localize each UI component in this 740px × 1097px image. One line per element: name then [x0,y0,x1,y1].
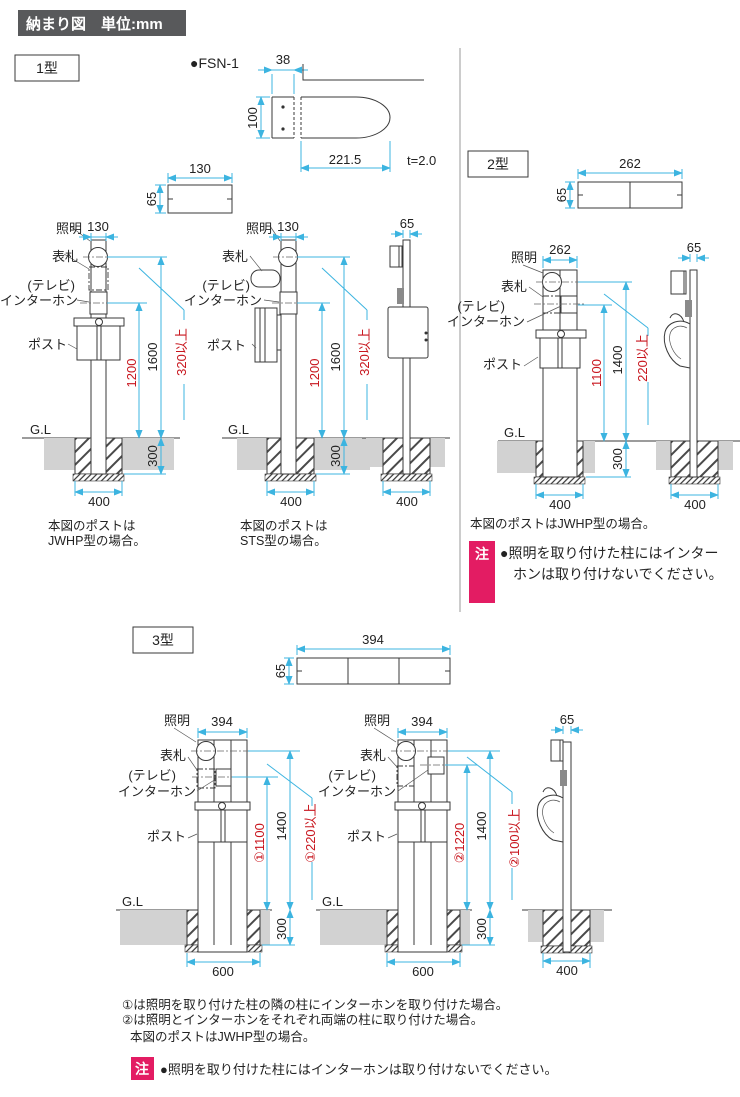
type3-side-view: 65 400 [522,712,612,978]
dim-bracket-width: 38 [276,52,290,67]
dim-footing-600: 600 [412,964,434,979]
dim-1400: 1400 [474,812,489,841]
dim-min-320: 320以上 [174,328,189,376]
dim-1600: 1600 [328,343,343,372]
pole [281,240,296,474]
post-side [388,307,428,358]
label-tv: (テレビ) [328,768,376,783]
dim-footing-400: 400 [88,494,110,509]
note-line2: JWHP型の場合。 [48,533,146,548]
type3-note-1: ①は照明を取り付けた柱の隣の柱にインターホンを取り付けた場合。 [122,997,508,1012]
label-nameplate: 表札 [52,249,78,264]
dim-width: 394 [411,714,433,729]
topview-width: 394 [362,632,384,647]
dim-1400: 1400 [610,346,625,375]
note-line1: 本図のポストは [48,519,136,533]
type1-detail-drawing: 38 100 221.5 t=2.0 [245,52,436,172]
type2-topview: 262 65 [554,156,682,208]
label-nameplate: 表札 [501,279,527,294]
label-nameplate: 表札 [360,748,386,763]
dim-min-320: 320以上 [357,328,372,376]
post-box [198,810,247,842]
type1-label: 1型 [36,60,58,76]
label-light: 照明 [56,221,82,236]
dim-1400: 1400 [274,812,289,841]
type3-note-2: ②は照明とインターホンをそれぞれ両端の柱に取り付けた場合。 [122,1012,483,1027]
label-light: 照明 [511,250,537,265]
label-interphone: インターホン [118,784,196,799]
page-header: 納まり図 単位:mm [18,10,186,36]
topview-depth: 65 [144,192,159,206]
type3-label: 3型 [152,632,174,648]
label-interphone: インターホン [318,784,396,799]
label-gl: G.L [228,422,249,437]
label-nameplate: 表札 [222,249,248,264]
topview-width: 262 [619,156,641,171]
type2-side-view: 65 400 [652,240,740,512]
dim-side-65: 65 [687,240,701,255]
label-gl: G.L [322,894,343,909]
post-box [77,326,120,360]
type2-section: 2型 262 65 照明 表札 (テレビ) インターホン ポスト [447,151,740,603]
label-gl: G.L [30,422,51,437]
dim-footing-600: 600 [212,964,234,979]
dim-plate-length: 221.5 [329,152,362,167]
topview-depth: 65 [554,188,569,202]
label-light: 照明 [364,713,390,728]
dim-depth-300: 300 [328,445,343,467]
type3-front1: 照明 表札 (テレビ) インターホン ポスト 394 ①1100 1400 ①2… [116,713,318,979]
type1-topview: 130 65 [144,161,232,213]
type1-section: 1型 ●FSN-1 38 100 221.5 t=2.0 130 65 [0,52,450,548]
type3-caution: 注 ●照明を取り付けた柱にはインターホンは取り付けないでください。 [131,1057,557,1080]
label-tv: (テレビ) [457,299,505,314]
installation-diagram-page: 納まり図 単位:mm 1型 ●FSN-1 38 100 221.5 t=2.0 … [0,0,740,1097]
type2-post-note: 本図のポストはJWHP型の場合。 [470,516,655,531]
label-post: ポスト [483,357,522,372]
caution-tag: 注 [475,546,489,562]
dim-1100: 1100 [589,359,604,387]
caution-text: ●照明を取り付けた柱にはインターホンは取り付けないでください。 [160,1062,557,1077]
dim-footing-400: 400 [280,494,302,509]
label-light: 照明 [164,713,190,728]
dim-bracket-height: 100 [245,107,260,129]
post-box [540,338,580,368]
caution-line1: ●照明を取り付けた柱にはインター [500,545,718,561]
caution-tag: 注 [135,1061,149,1077]
post-box [398,810,447,842]
dim-side-65: 65 [400,216,414,231]
dim-width: 262 [549,242,571,257]
post-box-sts [255,308,277,362]
label-interphone: インターホン [184,293,262,308]
note-line1: 本図のポストは [240,519,328,533]
type2-label: 2型 [487,156,509,172]
type3-section: 3型 394 65 照明 表札 (テレビ) インターホン ポスト [116,627,612,1080]
caution-line2: ホンは取り付けないでください。 [513,566,723,582]
nameplate-pill [251,270,280,287]
dim-depth-300: 300 [610,448,625,470]
label-tv: (テレビ) [202,278,250,293]
label-post: ポスト [28,337,67,352]
type1-front-sts: 照明 表札 (テレビ) インターホン ポスト 130 1200 1600 320… [184,219,372,548]
type3-post-note: 本図のポストはJWHP型の場合。 [130,1029,315,1044]
dim-depth-300: 300 [274,918,289,940]
type3-front2: 照明 表札 (テレビ) インターホン ポスト 394 ②1220 1400 ②1… [316,713,522,979]
type1-front-jwhp: 照明 表札 (テレビ) インターホン ポスト 130 1200 1600 320… [0,219,189,548]
post-side-curved [664,314,690,368]
interphone-side [560,770,567,786]
dim-1200: 1200 [307,359,322,388]
dim-1200: 1200 [124,359,139,388]
note-line2: STS型の場合。 [240,533,327,548]
plate-thickness: t=2.0 [407,153,436,168]
dim-min-220: ①220以上 [303,803,318,862]
interphone-box [561,296,577,313]
topview-depth: 65 [273,664,288,678]
label-gl: G.L [122,894,143,909]
interphone-box [216,769,231,786]
interphone-side [685,300,692,317]
wall-line [303,64,424,80]
dim-min-220: 220以上 [635,334,650,382]
product-code: ●FSN-1 [190,55,239,71]
label-light: 照明 [246,221,272,236]
dim-1600: 1600 [145,343,160,372]
type1-side-view: 65 400 [362,216,450,509]
dim-1100: ①1100 [252,823,267,863]
dim-depth-300: 300 [474,918,489,940]
label-gl: G.L [504,425,525,440]
type2-caution: 注 ●照明を取り付けた柱にはインター ホンは取り付けないでください。 [469,541,723,603]
dim-footing-400: 400 [556,963,578,978]
topview-width: 130 [189,161,211,176]
dim-width: 130 [277,219,299,234]
type3-topview: 394 65 [273,632,450,684]
label-interphone: インターホン [0,293,78,308]
label-tv: (テレビ) [27,278,75,293]
dim-footing-400: 400 [549,497,571,512]
dim-width: 130 [87,219,109,234]
dim-width: 394 [211,714,233,729]
dim-footing-400: 400 [396,494,418,509]
interphone-side [397,288,404,304]
label-tv: (テレビ) [128,768,176,783]
interphone-box [428,757,444,774]
lamp-side [551,740,563,761]
diagram-canvas: 納まり図 単位:mm 1型 ●FSN-1 38 100 221.5 t=2.0 … [0,0,740,1097]
dim-1220: ②1220 [452,823,467,864]
dim-depth-300: 300 [145,445,160,467]
label-post: ポスト [147,829,186,844]
dim-footing-400: 400 [684,497,706,512]
type2-front: 照明 表札 (テレビ) インターホン ポスト 262 1100 1400 220… [447,242,660,512]
label-post: ポスト [207,338,246,353]
label-interphone: インターホン [447,314,525,329]
dim-min-100: ②100以上 [507,808,522,867]
label-post: ポスト [347,829,386,844]
dim-side-65: 65 [560,712,574,727]
label-nameplate: 表札 [160,748,186,763]
lamp-side [390,246,402,267]
post-side-curved [537,788,563,842]
page-title: 納まり図 単位:mm [26,15,163,33]
